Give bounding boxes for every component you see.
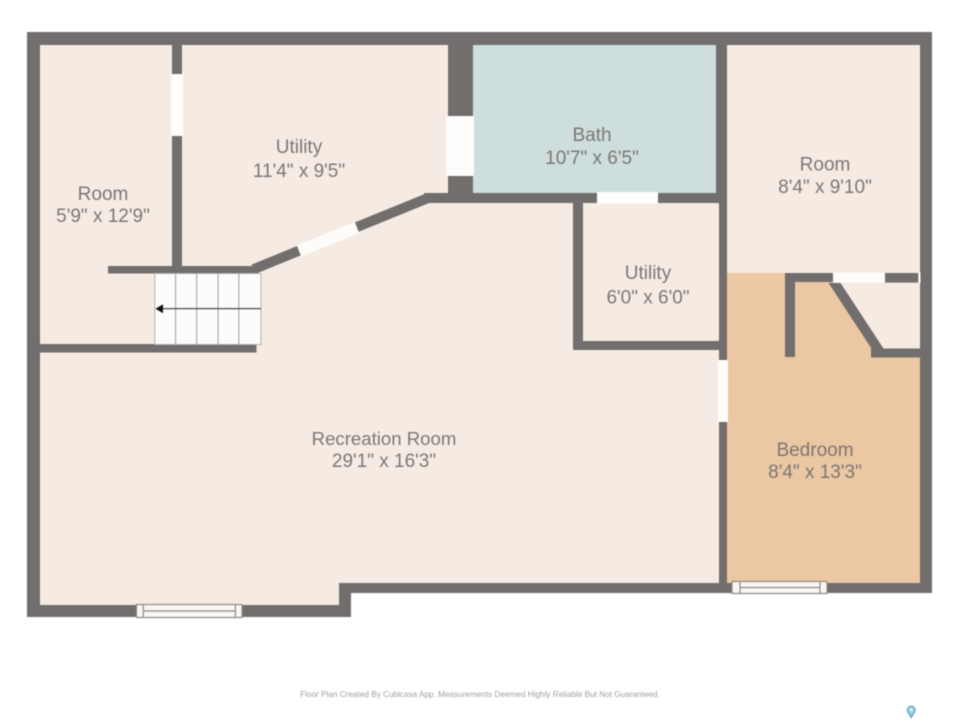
svg-text:5'9" x 12'9": 5'9" x 12'9" [56,206,150,227]
svg-text:Utility: Utility [276,137,323,158]
svg-text:Utility: Utility [625,263,672,284]
svg-text:Bath: Bath [572,125,611,146]
svg-text:Room: Room [78,184,129,205]
svg-text:10'7" x 6'5": 10'7" x 6'5" [545,148,639,169]
svg-text:Floor Plan Created By Cubicasa: Floor Plan Created By Cubicasa App. Meas… [300,690,660,699]
svg-text:Room: Room [800,155,851,176]
svg-text:8'4" x 13'3": 8'4" x 13'3" [768,462,862,483]
svg-text:Recreation Room: Recreation Room [312,428,457,449]
svg-text:11'4" x 9'5": 11'4" x 9'5" [253,161,345,182]
svg-text:8'4" x 9'10": 8'4" x 9'10" [778,177,872,198]
svg-text:6'0" x 6'0": 6'0" x 6'0" [606,288,689,309]
svg-text:Bedroom: Bedroom [776,440,853,461]
svg-text:29'1" x 16'3": 29'1" x 16'3" [332,451,436,472]
